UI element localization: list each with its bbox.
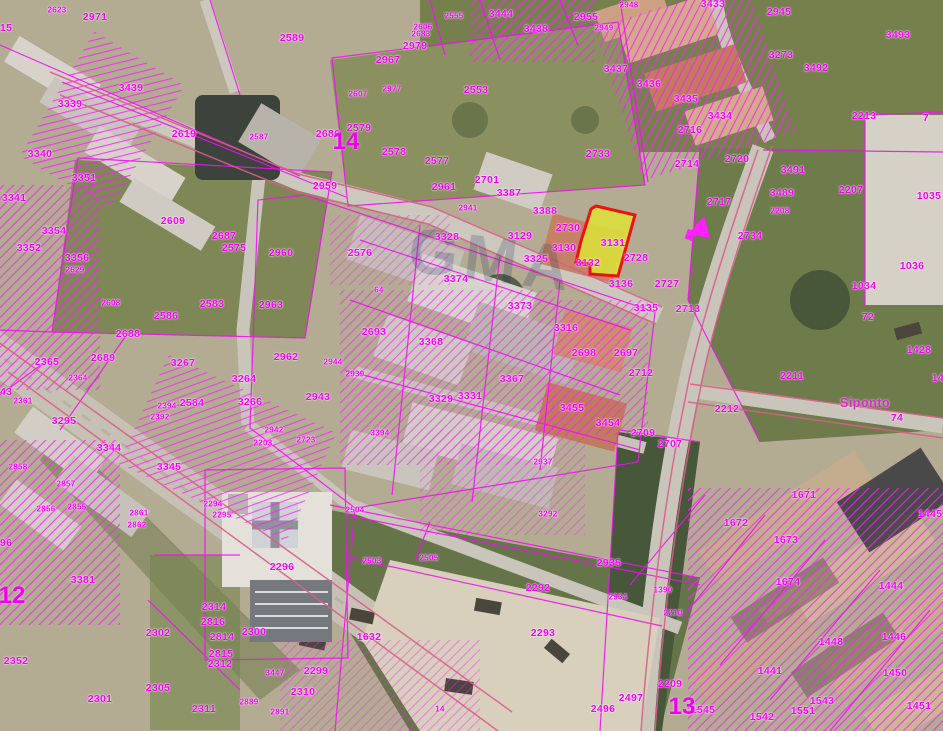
parcel-label: 2939 xyxy=(346,370,365,379)
parcel-label: 3340 xyxy=(28,148,53,160)
parcel-label: 2211 xyxy=(780,370,804,382)
parcel-label: 2693 xyxy=(362,326,387,338)
cadastral-map[interactable]: GMA 262329712615258934393339334026192587… xyxy=(0,0,943,731)
parcel-label: 3316 xyxy=(554,322,579,334)
parcel-label: 2305 xyxy=(146,682,171,694)
parcel-label: 2701 xyxy=(475,174,500,186)
parcel-label: 1428 xyxy=(907,344,932,356)
parcel-label: 3325 xyxy=(524,253,549,265)
parcel-label: 1036 xyxy=(900,260,925,272)
parcel-label: 1450 xyxy=(883,667,908,679)
parcel-label: 2576 xyxy=(348,247,373,259)
parcel-label: 3296 xyxy=(0,537,12,549)
parcel-label: 2293 xyxy=(531,627,556,639)
parcel-label: 2555 xyxy=(445,12,464,21)
parcel-label: 3292 xyxy=(539,510,558,519)
parcel-label: 2733 xyxy=(586,148,611,160)
parcel-label: 3267 xyxy=(171,357,196,369)
parcel-label: 2505 xyxy=(420,554,439,563)
parcel-label: 2683 xyxy=(412,30,431,39)
parcel-label: 1542 xyxy=(750,711,775,723)
parcel-label: 3328 xyxy=(435,231,460,243)
parcel-label: 2855 xyxy=(68,503,87,512)
parcel-label: 3135 xyxy=(634,302,659,314)
parcel-label: 2713 xyxy=(676,303,701,315)
parcel-label: 2948 xyxy=(620,1,639,10)
parcel-label: 3344 xyxy=(97,442,122,454)
parcel-label: 2814 xyxy=(210,631,235,643)
parcel-label: 2496 xyxy=(591,703,616,715)
parcel-label: 2861 xyxy=(130,509,149,518)
parcel-label: 2607 xyxy=(349,90,368,99)
parcel-label: 2577 xyxy=(425,155,450,167)
parcel-label: 2503 xyxy=(363,557,382,566)
parcel-label: 3351 xyxy=(72,172,97,184)
parcel-label: 2944 xyxy=(324,358,343,367)
parcel-label: 3356 xyxy=(65,252,90,264)
parcel-label: 2943 xyxy=(306,391,331,403)
parcel-label: 2392 xyxy=(151,413,170,422)
parcel-label: 2707 xyxy=(658,438,683,450)
parcel-label: 2963 xyxy=(259,299,284,311)
sheet-number-label: 14 xyxy=(333,128,360,156)
parcel-label: 2891 xyxy=(271,708,290,717)
parcel-label: 2578 xyxy=(382,146,407,158)
parcel-label: 2629 xyxy=(66,266,85,275)
parcel-label: 74 xyxy=(891,412,903,424)
parcel-label: 3434 xyxy=(708,110,733,122)
parcel-label: 2394 xyxy=(158,402,177,411)
parcel-label: 1632 xyxy=(357,631,382,643)
parcel-label: 2292 xyxy=(526,582,551,594)
parcel-label: 2207 xyxy=(839,184,864,196)
parcel-label: 2608 xyxy=(102,299,121,308)
parcel-label: 3131 xyxy=(601,237,626,249)
parcel-label: 3447 xyxy=(266,669,285,678)
parcel-label: 3491 xyxy=(781,164,806,176)
parcel-label: 2583 xyxy=(200,298,225,310)
parcel-label: 2937 xyxy=(534,458,553,467)
parcel-label: 2361 xyxy=(14,397,33,406)
parcel-label: 3329 xyxy=(429,393,454,405)
parcel-label: 2615 xyxy=(0,22,12,34)
parcel-label: 2941 xyxy=(459,204,478,213)
parcel-label: 2858 xyxy=(9,463,28,472)
parcel-label: 1035 xyxy=(917,190,942,202)
parcel-label: 3436 xyxy=(637,78,662,90)
parcel-label: 2971 xyxy=(83,11,108,23)
parcel-label: 2712 xyxy=(629,367,654,379)
parcel-label: 2314 xyxy=(202,601,227,613)
parcel-label: 2960 xyxy=(269,247,294,259)
parcel-label: 2553 xyxy=(464,84,489,96)
parcel-label: 3264 xyxy=(232,373,257,385)
parcel-label: 1445 xyxy=(918,508,943,520)
parcel-label: 2575 xyxy=(222,242,247,254)
parcel-label: 2587 xyxy=(250,133,269,142)
parcel-label: 2857 xyxy=(57,480,76,489)
parcel-label: 3394 xyxy=(371,429,390,438)
sheet-number-label: 12 xyxy=(0,582,25,610)
parcel-label: 2623 xyxy=(48,6,67,15)
parcel-label: 1543 xyxy=(810,695,835,707)
parcel-label: 3438 xyxy=(524,23,549,35)
parcel-label: 3273 xyxy=(769,49,794,61)
parcel-label: 2589 xyxy=(280,32,305,44)
parcel-label: 3266 xyxy=(238,396,263,408)
parcel-label: 3455 xyxy=(560,402,585,414)
parcel-label: 2300 xyxy=(242,626,267,638)
parcel-label: 2959 xyxy=(313,180,338,192)
parcel-label: 2962 xyxy=(274,351,299,363)
parcel-label: 2311 xyxy=(192,703,216,715)
parcel-label: 2730 xyxy=(556,222,581,234)
parcel-label: 2208 xyxy=(771,207,790,216)
parcel-label: 3387 xyxy=(497,187,522,199)
parcel-label: 3435 xyxy=(674,93,699,105)
parcel-label: 2709 xyxy=(631,427,656,439)
parcel-label: 2935 xyxy=(597,557,622,569)
parcel-label: 2212 xyxy=(715,403,740,415)
parcel-label: 14 xyxy=(435,705,445,714)
parcel-label: 1444 xyxy=(879,580,904,592)
parcel-label: 1673 xyxy=(774,534,799,546)
parcel-label: 3132 xyxy=(576,257,601,269)
labels-layer: 2623297126152589343933393340261925873351… xyxy=(0,0,943,731)
parcel-label: 2619 xyxy=(172,128,197,140)
parcel-label: 3374 xyxy=(444,273,469,285)
parcel-label: 2312 xyxy=(208,658,233,670)
parcel-label: 2942 xyxy=(265,426,284,435)
parcel-label: 3373 xyxy=(508,300,533,312)
parcel-label: 3368 xyxy=(419,336,444,348)
parcel-label: 3443 xyxy=(0,386,12,398)
parcel-label: 3354 xyxy=(42,225,67,237)
parcel-label: 2816 xyxy=(201,616,226,628)
parcel-label: 3295 xyxy=(52,415,77,427)
parcel-label: 1672 xyxy=(724,517,749,529)
parcel-label: 3339 xyxy=(58,98,83,110)
parcel-label: 72 xyxy=(862,311,874,323)
parcel-label: 2364 xyxy=(69,374,88,383)
parcel-label: 2296 xyxy=(270,561,295,573)
parcel-label: 3454 xyxy=(596,417,621,429)
parcel-label: 2210 xyxy=(664,609,683,618)
parcel-label: 3136 xyxy=(609,278,634,290)
parcel-label: 1674 xyxy=(776,576,801,588)
parcel-label: 3437 xyxy=(604,63,629,75)
parcel-label: 3489 xyxy=(770,187,795,199)
parcel-label: 2586 xyxy=(154,310,179,322)
street-name-label: Siponto xyxy=(840,396,890,410)
parcel-label: 3341 xyxy=(2,192,27,204)
parcel-label: 2689 xyxy=(91,352,116,364)
parcel-label: 3433 xyxy=(701,0,726,10)
parcel-label: 3492 xyxy=(804,62,829,74)
parcel-label: 2310 xyxy=(291,686,316,698)
parcel-label: 2949 xyxy=(595,24,614,33)
parcel-label: 2720 xyxy=(725,153,750,165)
parcel-label: 2862 xyxy=(128,521,147,530)
parcel-label: 2295 xyxy=(213,511,232,520)
parcel-label: 2717 xyxy=(707,196,732,208)
parcel-label: 3331 xyxy=(458,390,483,402)
parcel-label: 2299 xyxy=(304,665,329,677)
parcel-label: 2961 xyxy=(432,181,457,193)
parcel-label: 1451 xyxy=(907,700,932,712)
parcel-label: 2727 xyxy=(655,278,680,290)
parcel-label: 2609 xyxy=(161,215,186,227)
parcel-label: 3130 xyxy=(552,242,577,254)
parcel-label: 2967 xyxy=(376,54,401,66)
parcel-label: 2301 xyxy=(88,693,113,705)
parcel-label: 2294 xyxy=(204,500,223,509)
parcel-label: 2688 xyxy=(116,328,141,340)
parcel-label: 143 xyxy=(932,372,943,384)
parcel-label: 3444 xyxy=(489,8,514,20)
parcel-label: 1390 xyxy=(654,586,673,595)
parcel-label: 3352 xyxy=(17,242,42,254)
parcel-label: 3493 xyxy=(886,29,911,41)
parcel-label: 64 xyxy=(374,286,384,295)
parcel-label: 2213 xyxy=(852,110,877,122)
parcel-label: 2209 xyxy=(658,678,683,690)
parcel-label: 2497 xyxy=(619,692,644,704)
parcel-label: 2945 xyxy=(767,6,792,18)
parcel-label: 2584 xyxy=(180,397,205,409)
parcel-label: 2352 xyxy=(4,655,29,667)
parcel-label: 2728 xyxy=(624,252,649,264)
parcel-label: 2977 xyxy=(383,85,402,94)
parcel-label: 2365 xyxy=(35,356,60,368)
parcel-label: 3388 xyxy=(533,205,558,217)
parcel-label: 1448 xyxy=(819,636,844,648)
parcel-label: 1441 xyxy=(758,665,783,677)
parcel-label: 2203 xyxy=(254,439,273,448)
parcel-label: 2723 xyxy=(297,436,316,445)
parcel-label: 2955 xyxy=(574,11,599,23)
parcel-label: 1034 xyxy=(852,280,877,292)
parcel-label: 3439 xyxy=(119,82,144,94)
parcel-label: 2734 xyxy=(738,230,763,242)
parcel-label: 2934 xyxy=(609,593,628,602)
parcel-label: 2687 xyxy=(212,230,237,242)
parcel-label: 2889 xyxy=(240,698,259,707)
parcel-label: 2698 xyxy=(572,347,597,359)
parcel-label: 3129 xyxy=(508,230,533,242)
parcel-label: 2697 xyxy=(614,347,639,359)
parcel-label: 1446 xyxy=(882,631,907,643)
parcel-label: 7 xyxy=(923,112,929,124)
parcel-label: 2504 xyxy=(346,506,365,515)
parcel-label: 2716 xyxy=(678,124,703,136)
parcel-label: 2979 xyxy=(403,40,428,52)
parcel-label: 3367 xyxy=(500,373,525,385)
parcel-label: 3381 xyxy=(71,574,96,586)
sheet-number-label: 13 xyxy=(669,693,696,721)
parcel-label: 2302 xyxy=(146,627,171,639)
parcel-label: 3345 xyxy=(157,461,182,473)
parcel-label: 2714 xyxy=(675,158,700,170)
parcel-label: 1671 xyxy=(792,489,817,501)
parcel-label: 2856 xyxy=(37,505,56,514)
